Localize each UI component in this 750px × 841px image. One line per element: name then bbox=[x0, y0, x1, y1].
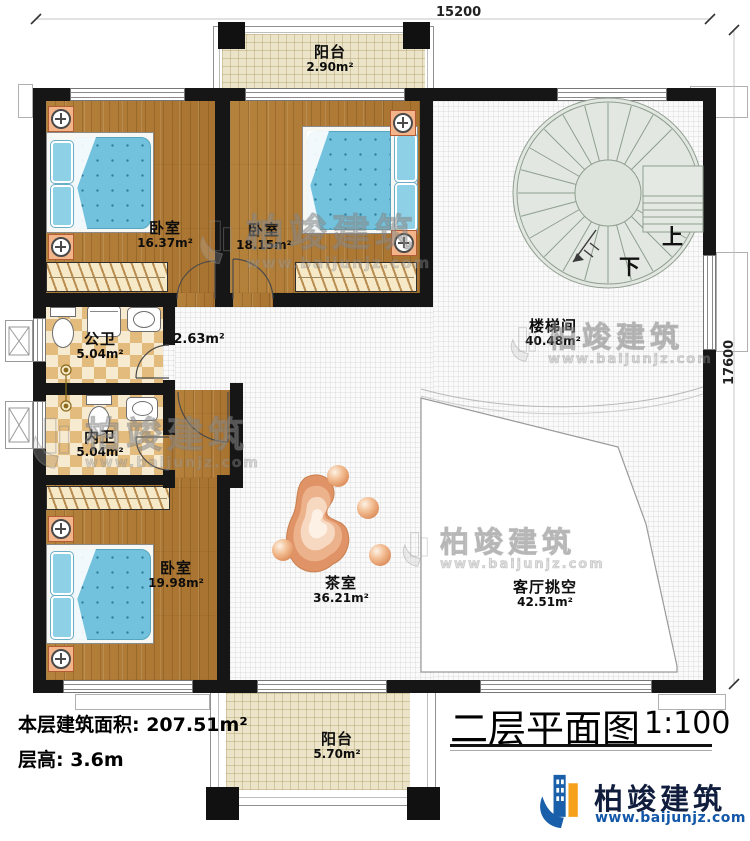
sink-icon bbox=[127, 307, 161, 332]
wall bbox=[215, 293, 233, 307]
bedroom-3-alcove-floor bbox=[175, 390, 230, 478]
room-label-private-bath: 内卫 5.04m² bbox=[76, 429, 123, 459]
dimension-top: 15200 bbox=[436, 5, 481, 20]
room-label-balcony-top: 阳台 2.90m² bbox=[306, 44, 353, 74]
wardrobe-icon bbox=[46, 262, 168, 292]
wall bbox=[703, 88, 716, 693]
lamp-icon bbox=[394, 233, 414, 253]
pillow-icon bbox=[51, 552, 73, 595]
window-sill bbox=[716, 252, 748, 352]
ac-unit-platform bbox=[5, 320, 33, 362]
nightstand-lamp-icon bbox=[390, 110, 416, 136]
room-label-hallway: 2.63m² bbox=[173, 333, 224, 347]
dimension-right: 17600 bbox=[722, 340, 737, 385]
column bbox=[407, 787, 440, 820]
title-underline bbox=[450, 744, 712, 747]
lamp-icon bbox=[393, 113, 413, 133]
column bbox=[206, 787, 239, 820]
window bbox=[63, 680, 193, 693]
wardrobe-icon bbox=[295, 262, 417, 292]
room-label-tea-room: 茶室 36.21m² bbox=[313, 575, 369, 605]
window bbox=[480, 680, 652, 693]
door-threshold bbox=[233, 293, 273, 307]
room-label-bedroom-2: 卧室 18.15m² bbox=[236, 222, 292, 252]
window-sill bbox=[75, 694, 210, 710]
window bbox=[245, 88, 405, 101]
door-threshold bbox=[163, 435, 175, 470]
lamp-icon bbox=[51, 519, 71, 539]
room-label-living-void: 客厅挑空 42.51m² bbox=[513, 579, 577, 609]
wall bbox=[273, 293, 420, 307]
pillow-icon bbox=[395, 183, 417, 231]
window bbox=[70, 88, 185, 101]
wall bbox=[215, 88, 230, 307]
wall bbox=[217, 477, 230, 680]
wall bbox=[33, 293, 177, 307]
hallway-floor bbox=[175, 307, 230, 390]
door-threshold bbox=[177, 293, 215, 307]
window bbox=[33, 318, 46, 362]
nightstand-lamp-icon bbox=[48, 516, 74, 542]
sink-basin bbox=[133, 311, 155, 328]
floor-plan-page: { "title": { "text": "二层平面图", "scale": "… bbox=[0, 0, 750, 841]
lamp-icon bbox=[51, 237, 71, 257]
door-threshold bbox=[163, 345, 175, 380]
room-label-bedroom-1: 卧室 16.37m² bbox=[137, 220, 193, 250]
wall bbox=[420, 88, 433, 307]
nightstand-lamp-icon bbox=[391, 230, 417, 256]
stat-floor-area: 本层建筑面积: 207.51m² bbox=[18, 710, 248, 737]
wardrobe-icon bbox=[46, 486, 170, 510]
toilet-icon bbox=[52, 318, 74, 348]
pillow-icon bbox=[51, 185, 73, 227]
room-label-bedroom-3: 卧室 19.98m² bbox=[148, 560, 204, 590]
nightstand-lamp-icon bbox=[48, 234, 74, 260]
window-sill bbox=[18, 84, 33, 118]
lamp-icon bbox=[51, 649, 71, 669]
wall bbox=[230, 383, 243, 488]
wall bbox=[33, 383, 175, 395]
lamp-icon bbox=[51, 109, 71, 129]
wall bbox=[33, 475, 175, 485]
column bbox=[403, 22, 430, 49]
stairs-down-label: 下 bbox=[619, 251, 640, 281]
room-label-balcony-bottom: 阳台 5.70m² bbox=[313, 731, 360, 761]
pillow-icon bbox=[395, 134, 417, 182]
company-website: www.baijunjz.com bbox=[595, 810, 746, 826]
sink-basin bbox=[132, 401, 153, 416]
sink-icon bbox=[126, 397, 158, 421]
room-label-public-bath: 公卫 5.04m² bbox=[76, 331, 123, 361]
stat-floor-height: 层高: 3.6m bbox=[18, 745, 124, 772]
toilet-icon bbox=[86, 395, 112, 405]
tea-room-floor bbox=[230, 307, 433, 680]
nightstand-lamp-icon bbox=[48, 646, 74, 672]
toilet-icon bbox=[50, 307, 76, 317]
bed-icon bbox=[302, 126, 418, 234]
stairs-up-label: 上 bbox=[662, 221, 683, 251]
room-label-stairwell: 楼梯间 40.48m² bbox=[525, 318, 581, 348]
pillow-icon bbox=[51, 596, 73, 639]
company-logo bbox=[533, 770, 589, 832]
column bbox=[218, 22, 245, 49]
window bbox=[557, 88, 667, 101]
scale-label: 1:100 bbox=[644, 706, 730, 741]
nightstand-lamp-icon bbox=[48, 106, 74, 132]
window bbox=[257, 680, 387, 693]
pillow-icon bbox=[51, 141, 73, 183]
bed-icon bbox=[46, 132, 154, 233]
window bbox=[703, 255, 716, 350]
title-underline-2 bbox=[450, 750, 712, 751]
ac-unit-platform bbox=[5, 401, 33, 449]
window bbox=[33, 401, 46, 449]
bed-icon bbox=[46, 544, 154, 644]
